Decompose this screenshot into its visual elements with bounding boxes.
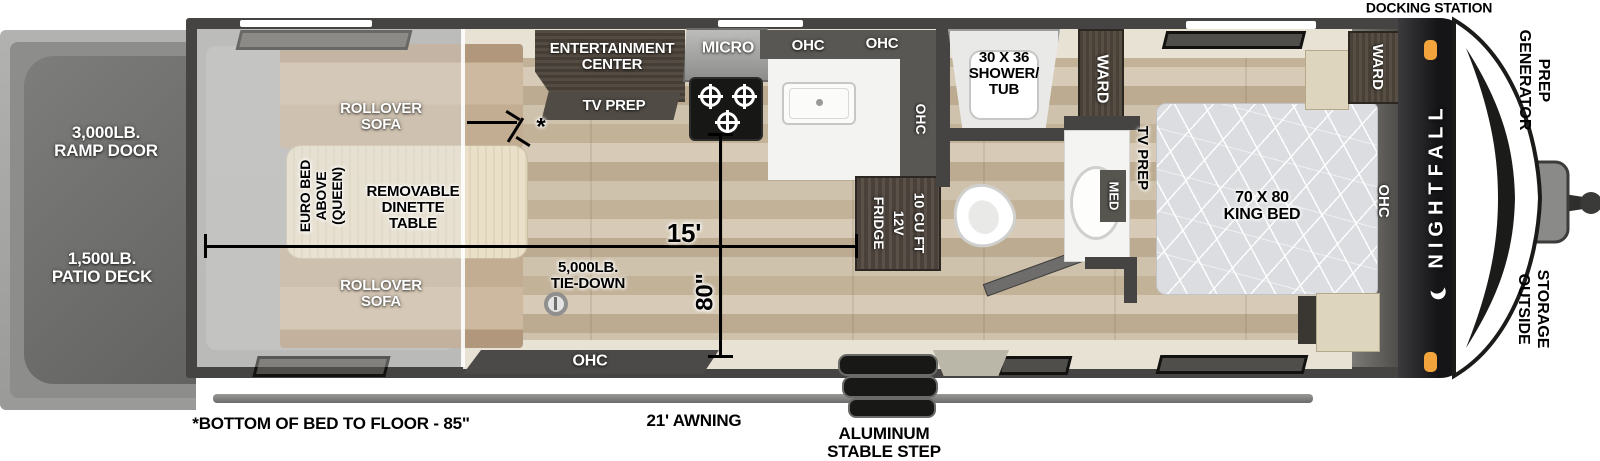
width-dim-line [719, 135, 722, 357]
shower-label: 30 X 36 SHOWER/ TUB [969, 50, 1039, 98]
patio-deck-label: 1,500LB. PATIO DECK [52, 250, 152, 286]
nightstand-cream [1316, 293, 1380, 352]
rollover-sofa-top-label: ROLLOVER SOFA [340, 101, 422, 133]
length-dim-tick [204, 234, 207, 258]
wall-strip [718, 20, 803, 27]
length-dim-line [205, 245, 858, 248]
entertainment-center-label: ENTERTAINMENT CENTER [550, 41, 675, 73]
width-dim-label: 80" [692, 273, 717, 310]
docking-station-label: DOCKING STATION [1366, 1, 1492, 16]
awning-label: 21' AWNING [647, 412, 742, 430]
tie-down-label: 5,000LB. TIE-DOWN [551, 260, 625, 292]
euro-bed-label: EURO BED ABOVE (QUEEN) [297, 160, 345, 232]
marker-light-icon [1424, 352, 1437, 372]
tv-prep-bedroom-label: TV PREP [1132, 126, 1152, 190]
wall-strip [240, 20, 372, 27]
bed-height-line [467, 121, 517, 124]
ohc-front-label: OHC [1373, 184, 1393, 217]
garage-divider-line [461, 29, 465, 367]
ohc-label: OHC [866, 36, 899, 52]
ward-bath-label: WARD [1091, 55, 1112, 104]
burner-icon [700, 86, 721, 107]
width-dim-tick [708, 355, 733, 358]
rollover-sofa-bottom-label: ROLLOVER SOFA [340, 278, 422, 310]
crescent-moon-icon [1428, 277, 1447, 296]
entry-step [838, 354, 938, 376]
awning-rail [213, 394, 1313, 403]
bedroom-top-window [1162, 31, 1306, 49]
tie-down-anchor-pin [554, 297, 557, 310]
ramp-door-label: 3,000LB. RAMP DOOR [54, 124, 158, 160]
bath-wall-vanity-top [1064, 116, 1140, 130]
ward-front-label: WARD [1367, 44, 1387, 90]
brand-text: NIGHTFALL [1426, 102, 1447, 268]
ohc-label-vertical: OHC [912, 103, 930, 134]
king-bed-label: 70 X 80 KING BED [1224, 190, 1301, 224]
entry-step [842, 376, 938, 398]
outside-storage-label: OUTSIDE STORAGE [1514, 270, 1552, 349]
bedroom-bottom-window [1156, 355, 1309, 374]
wall-strip [1186, 21, 1316, 29]
micro-label: MICRO [702, 41, 754, 58]
ramp-door-panel [24, 56, 196, 384]
marker-light-icon [1424, 40, 1437, 60]
bedroom-wall-v [1124, 257, 1137, 303]
width-dim-tick [708, 133, 733, 136]
kitchen-sink [782, 82, 856, 125]
entry-landing [933, 350, 1009, 376]
floorplan-scene: NIGHTFALL 3,000LB. RAMP DOOR 1,500LB. PA… [0, 0, 1600, 461]
step-label: ALUMINUM STABLE STEP [827, 425, 941, 461]
asterisk-marker: * [536, 114, 545, 139]
ohc-bottom-label: OHC [573, 354, 608, 371]
ohc-label: OHC [792, 38, 825, 54]
cooktop [689, 77, 763, 141]
tie-down-anchor-icon [544, 292, 568, 316]
bedroom-cabinet-cream [1305, 50, 1349, 110]
bath-wall-left [936, 29, 950, 187]
length-dim-label: 15' [667, 220, 702, 248]
nightstand-dark [1298, 296, 1316, 344]
burner-icon [717, 112, 738, 133]
med-label: MED [1105, 182, 1122, 211]
faucet-icon [816, 99, 823, 106]
bath-wall-under-shower [944, 128, 1078, 141]
length-dim-tick [855, 234, 858, 258]
dinette-label: REMOVABLE DINETTE TABLE [367, 184, 460, 232]
bed-height-note: *BOTTOM OF BED TO FLOOR - 85" [192, 415, 469, 433]
toilet-bowl [964, 196, 1003, 238]
entry-bottom-window [998, 356, 1073, 375]
entry-step [848, 398, 936, 418]
wall-strip [1016, 379, 1072, 385]
tv-prep-kitchen-label: TV PREP [583, 98, 646, 114]
generator-prep-label: GENERATOR PREP [1515, 30, 1553, 131]
fridge-label: 10 CU FT 12V FRIDGE [869, 193, 930, 254]
burner-icon [734, 86, 755, 107]
brand-logo: NIGHTFALL [1426, 102, 1447, 293]
wall-strip [465, 379, 690, 386]
